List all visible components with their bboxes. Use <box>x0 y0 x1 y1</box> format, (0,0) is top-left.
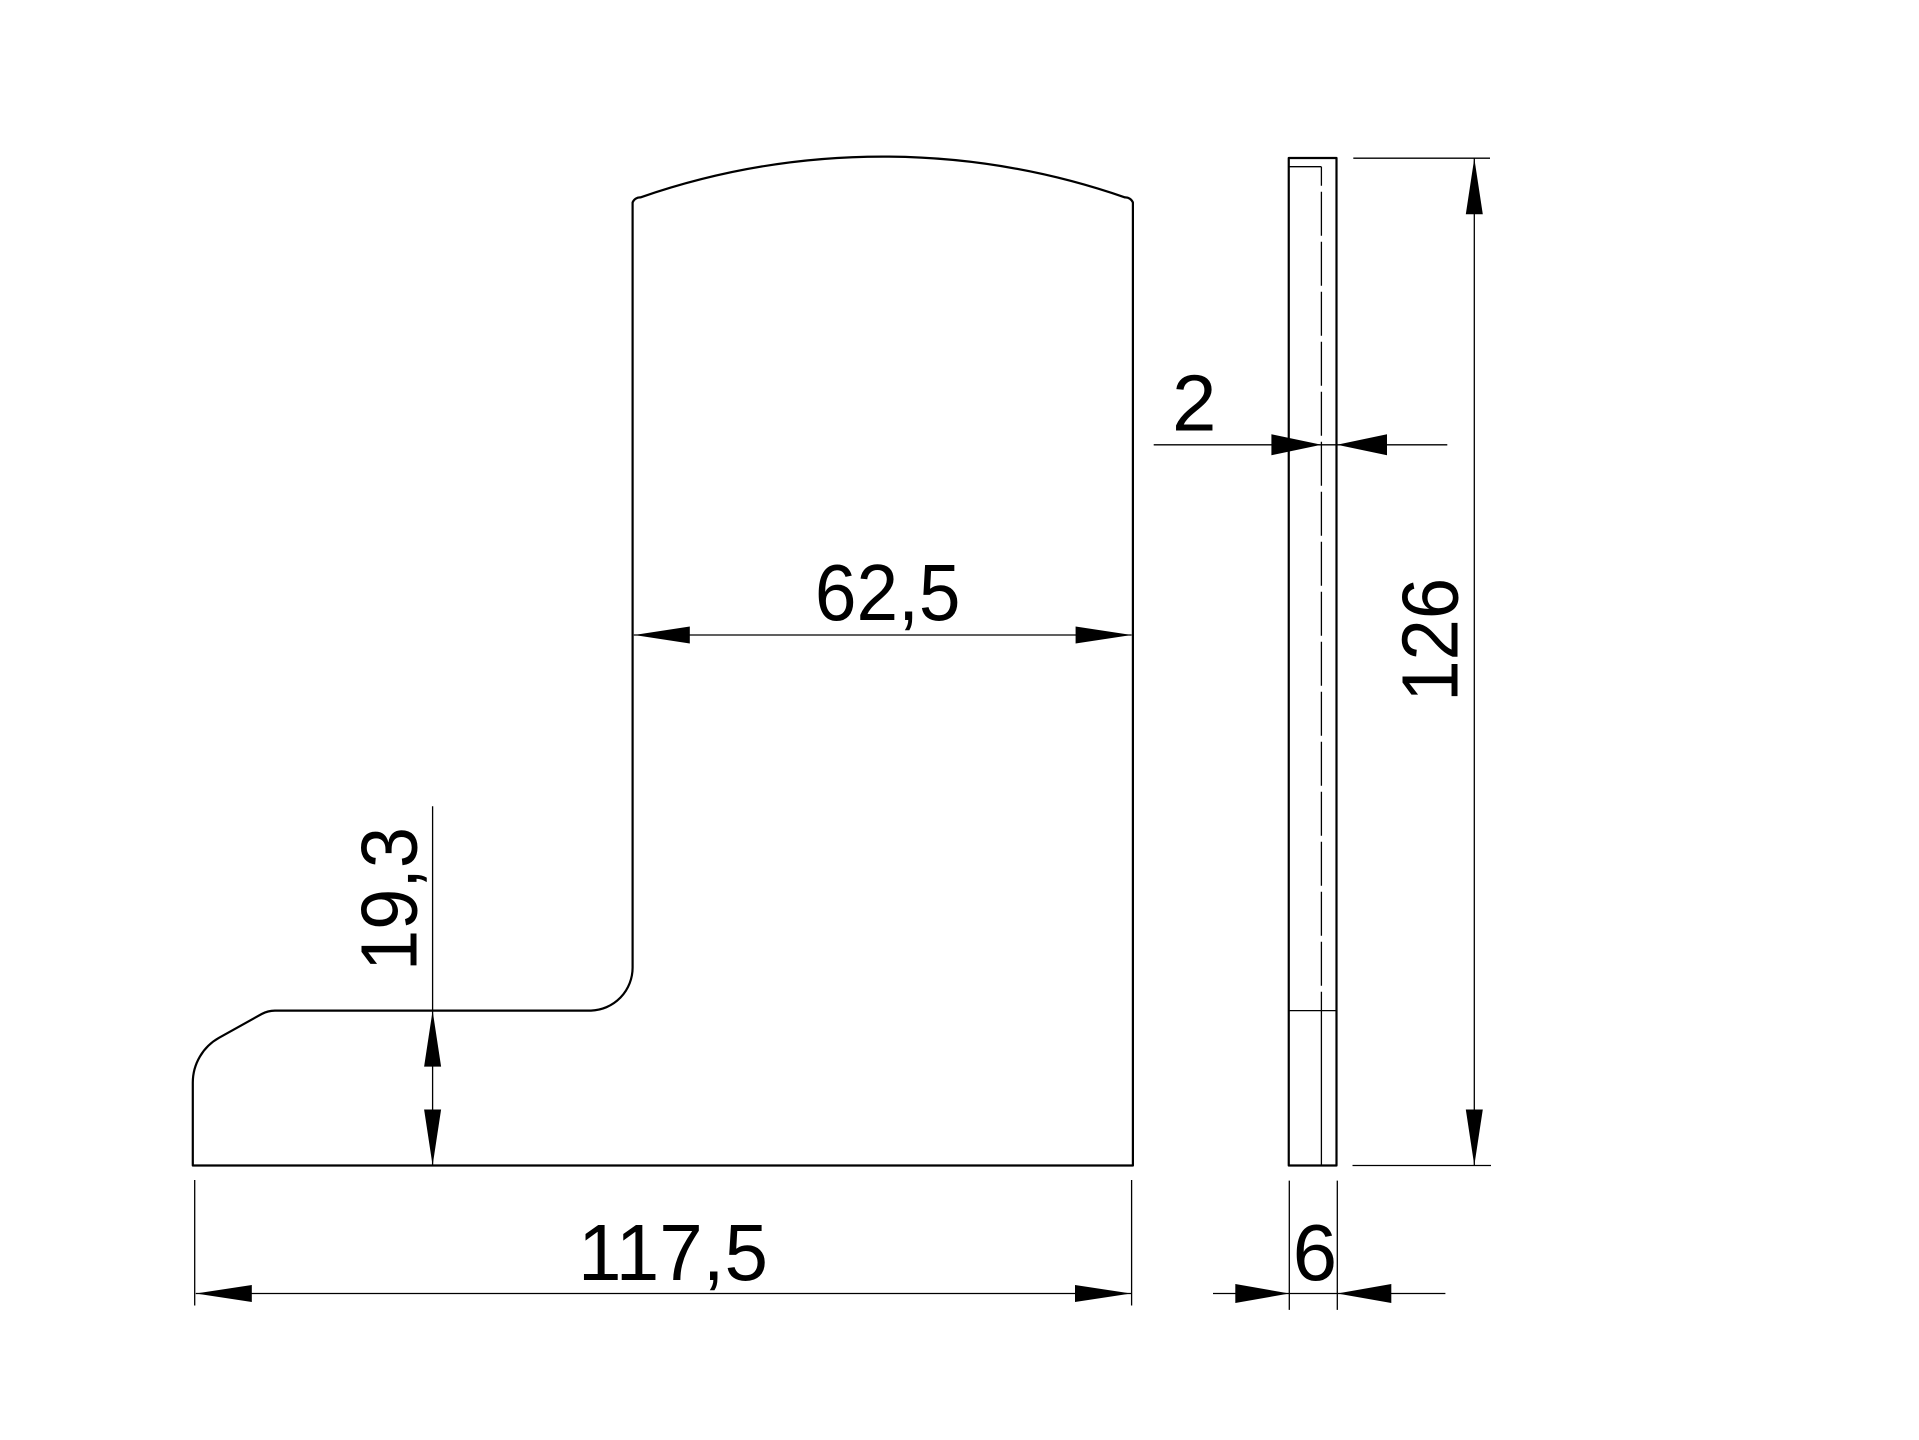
svg-text:2: 2 <box>1172 358 1217 447</box>
svg-text:19,3: 19,3 <box>345 827 434 971</box>
svg-text:6: 6 <box>1293 1208 1338 1297</box>
svg-text:117,5: 117,5 <box>578 1208 768 1297</box>
svg-text:62,5: 62,5 <box>815 548 961 637</box>
svg-text:126: 126 <box>1386 578 1475 702</box>
